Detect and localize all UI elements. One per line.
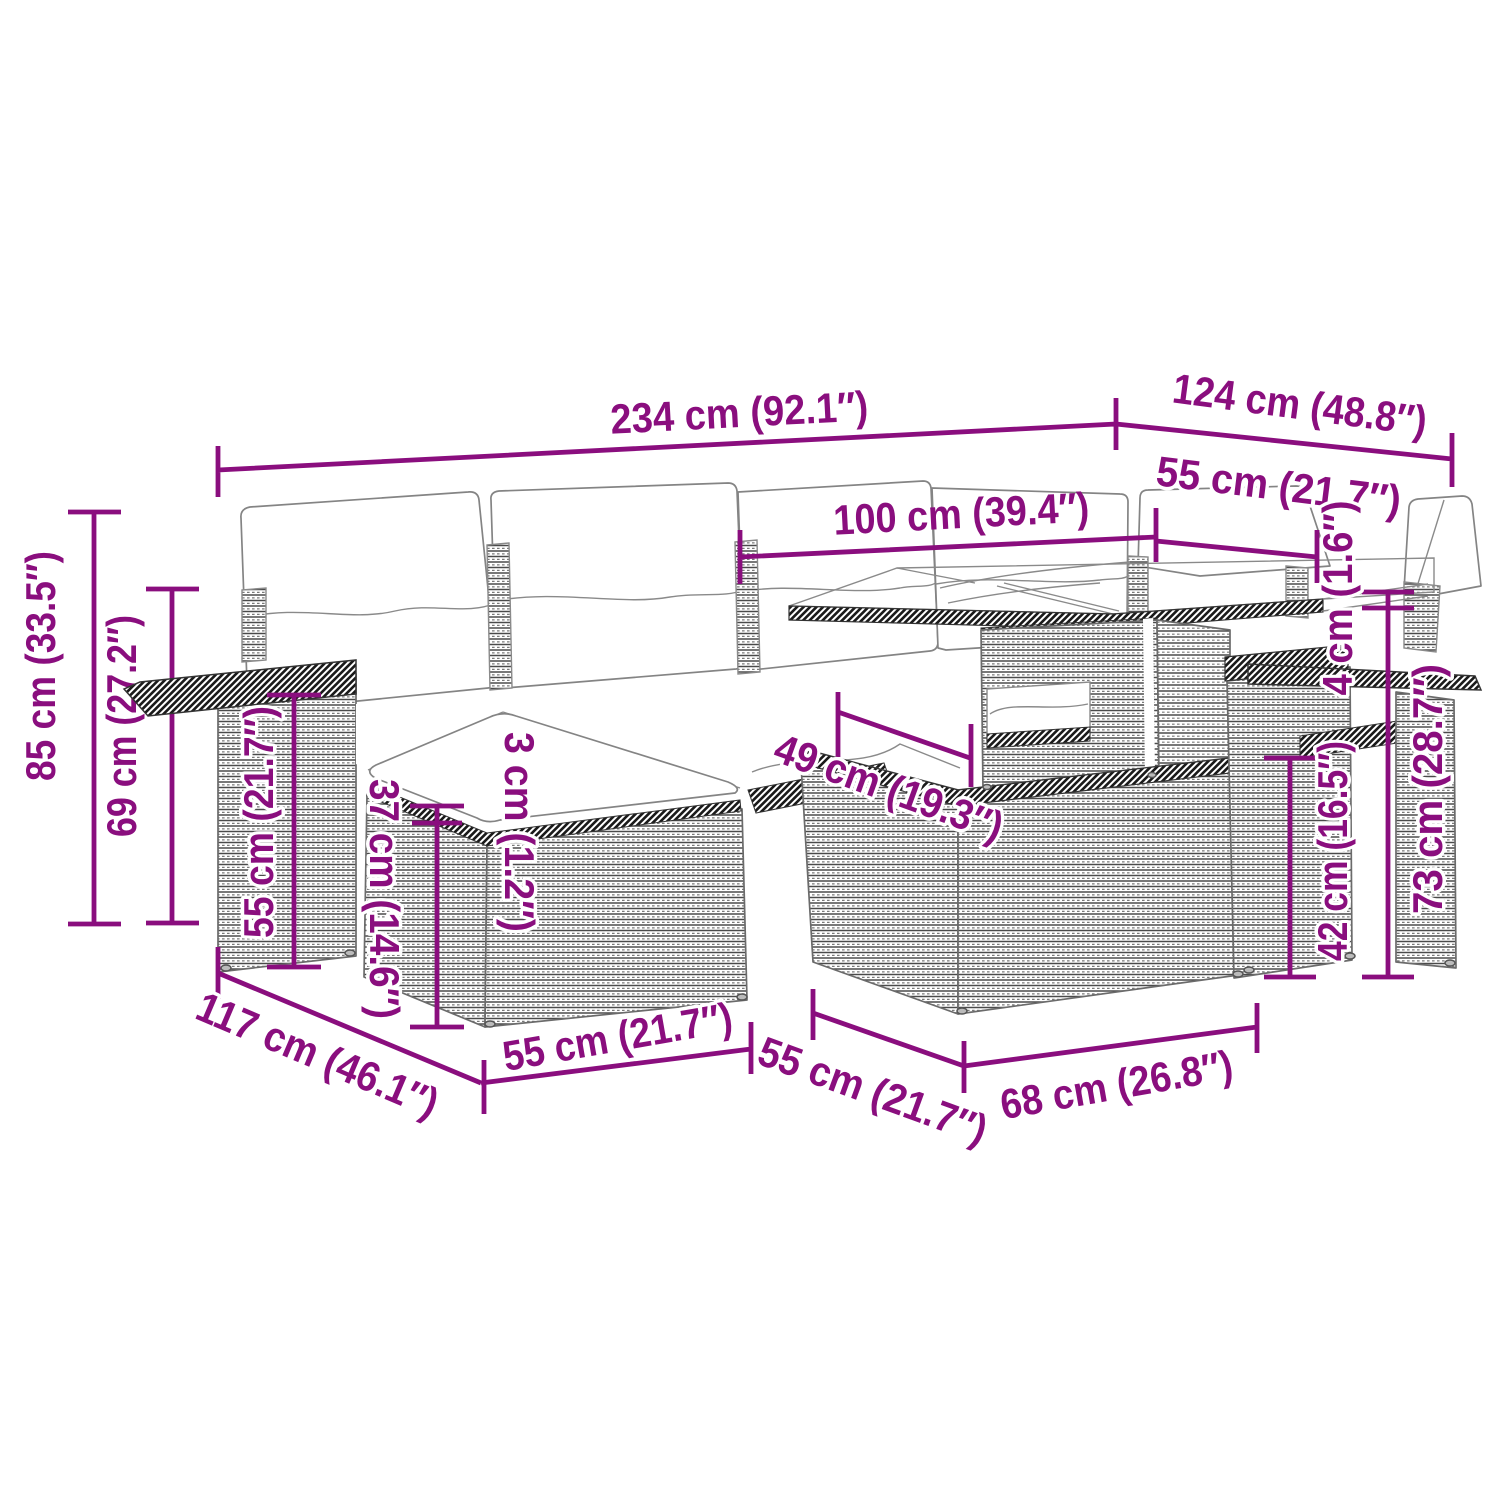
- svg-text:85 cm (33.5″): 85 cm (33.5″): [17, 551, 64, 781]
- svg-text:4 cm (1.6″): 4 cm (1.6″): [1314, 501, 1361, 696]
- svg-text:3 cm (1.2″): 3 cm (1.2″): [496, 732, 543, 932]
- svg-text:73 cm (28.7″): 73 cm (28.7″): [1404, 664, 1451, 914]
- svg-text:69 cm (27.2″): 69 cm (27.2″): [98, 615, 145, 837]
- svg-text:55 cm (21.7″): 55 cm (21.7″): [235, 706, 282, 938]
- svg-text:42 cm (16.5″): 42 cm (16.5″): [1309, 741, 1356, 961]
- svg-text:37 cm (14.6″): 37 cm (14.6″): [361, 779, 408, 1019]
